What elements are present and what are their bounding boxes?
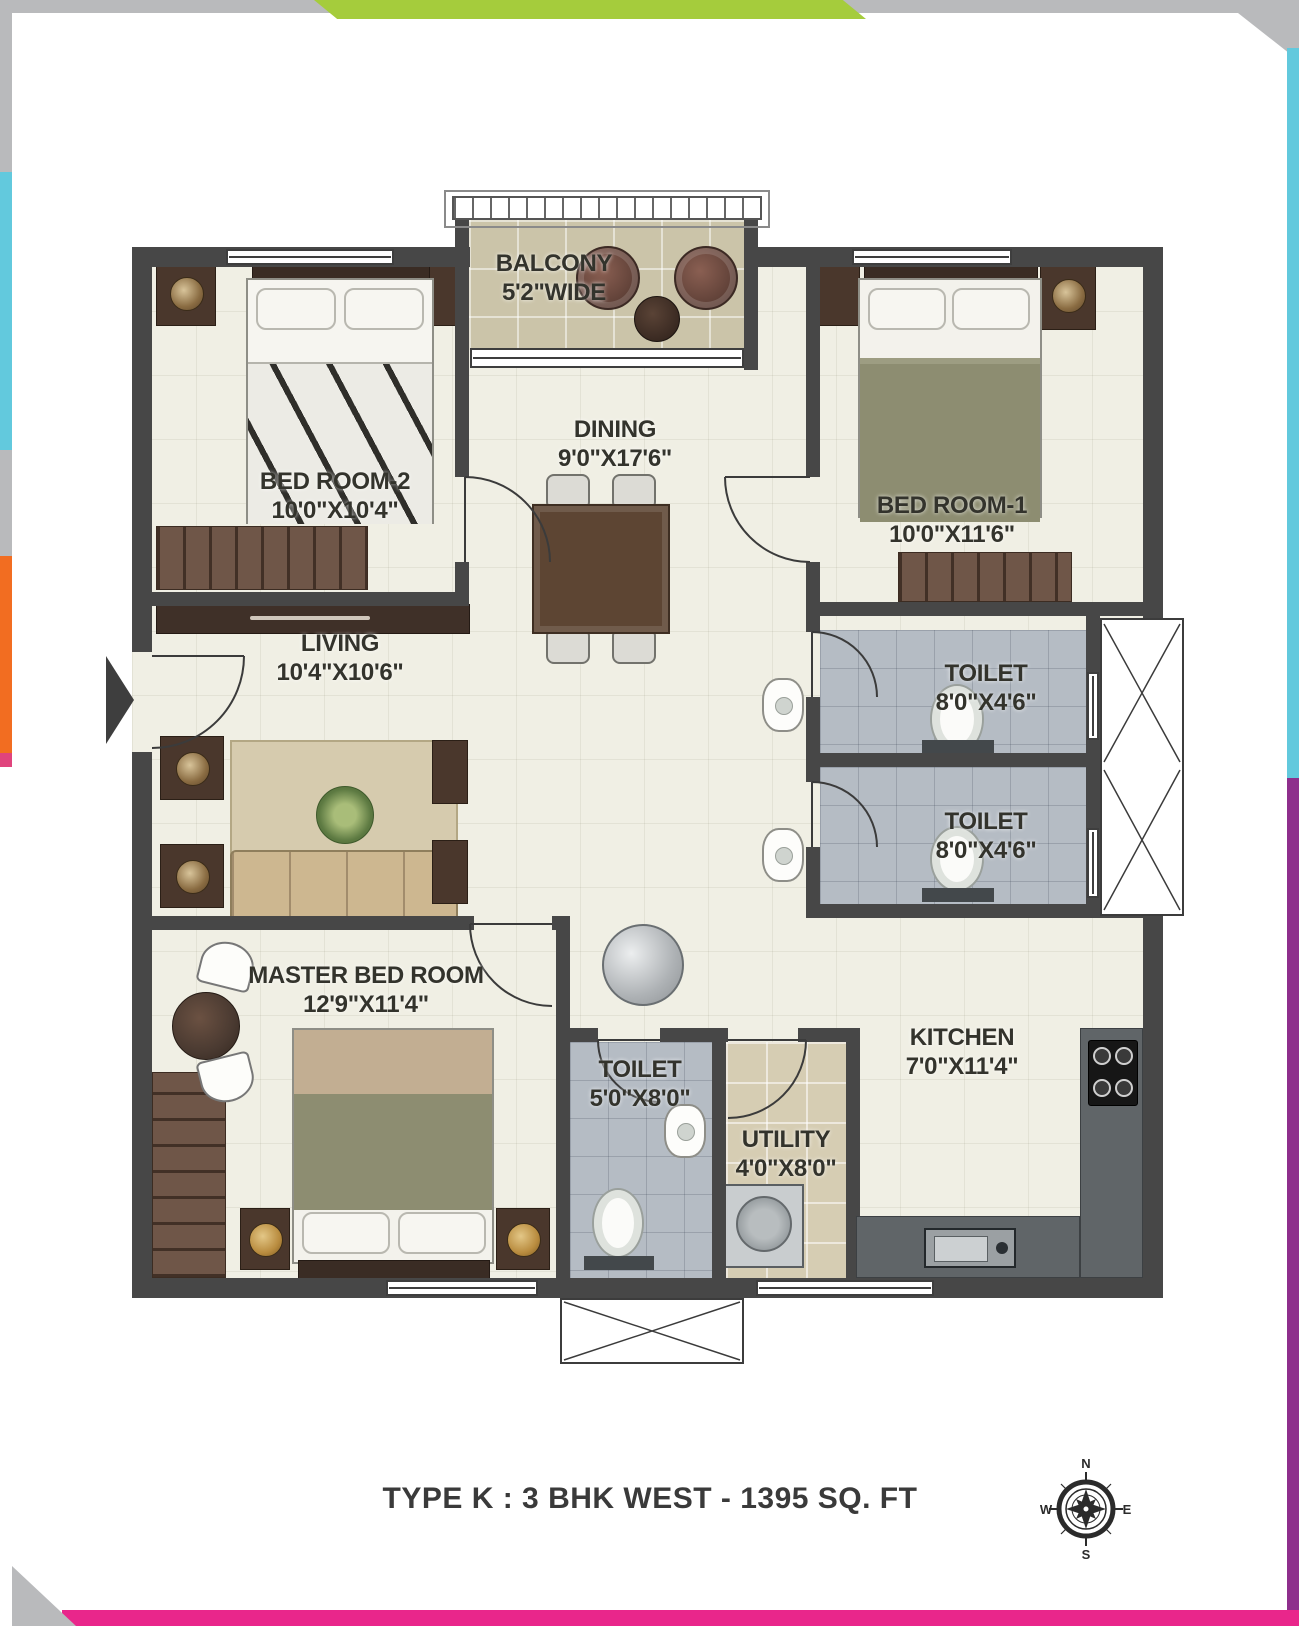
room-name: UTILITY xyxy=(714,1126,858,1155)
pillow xyxy=(256,288,336,330)
wall-bottomblock-top-a xyxy=(570,1028,598,1042)
room-size: 10'0"X10'4" xyxy=(200,497,470,526)
washing-machine-drum xyxy=(736,1196,792,1252)
frame-left-pink-tip xyxy=(0,753,12,767)
balcony-slider-window xyxy=(470,348,744,368)
nightstand xyxy=(240,1208,290,1270)
window-bedroom1 xyxy=(852,249,1012,265)
bed-headboard xyxy=(298,1260,490,1280)
room-name: KITCHEN xyxy=(854,1024,1070,1053)
duct-shaft-right xyxy=(1100,618,1184,916)
wash-basin xyxy=(762,678,804,732)
compass-east-label: E xyxy=(1123,1502,1132,1517)
room-label-living: LIVING 10'4"X10'6" xyxy=(235,630,445,688)
room-label-bedroom1: BED ROOM-1 10'0"X11'6" xyxy=(822,492,1082,550)
kitchen-sink xyxy=(924,1228,1016,1268)
toilet-fixture xyxy=(592,1188,644,1258)
pillow xyxy=(302,1212,390,1254)
balcony-wall-right xyxy=(744,213,758,370)
sink-basin xyxy=(934,1236,988,1262)
room-name: BALCONY xyxy=(470,250,638,279)
lamp-icon xyxy=(176,860,210,894)
room-name: TOILET xyxy=(566,1056,714,1085)
burner-icon xyxy=(1115,1047,1133,1065)
bed-blanket xyxy=(294,1094,492,1210)
wardrobe-bedroom2 xyxy=(156,526,368,590)
tv-console-line xyxy=(250,616,370,620)
frame-right-purple xyxy=(1287,778,1299,1612)
frame-bottom-pink xyxy=(62,1610,1299,1626)
room-size: 8'0"X4'6" xyxy=(893,837,1079,866)
room-label-bedroom2: BED ROOM-2 10'0"X10'4" xyxy=(200,468,470,526)
armchair xyxy=(432,740,468,804)
lamp-icon xyxy=(176,752,210,786)
burner-icon xyxy=(1115,1079,1133,1097)
armchair xyxy=(432,840,468,904)
frame-left-orange xyxy=(0,556,12,753)
window-bedroom2 xyxy=(226,249,394,265)
faucet-icon xyxy=(996,1242,1008,1254)
room-name: BED ROOM-2 xyxy=(200,468,470,497)
room-name: MASTER BED ROOM xyxy=(196,962,536,991)
window-toilet-mid xyxy=(1087,828,1099,898)
pillow xyxy=(868,288,946,330)
compass-west-label: W xyxy=(1040,1502,1053,1517)
side-table xyxy=(160,844,224,908)
nightstand xyxy=(814,260,860,326)
dining-table xyxy=(532,504,670,634)
room-name: LIVING xyxy=(235,630,445,659)
lamp-icon xyxy=(507,1223,541,1257)
compass-south-label: S xyxy=(1082,1547,1091,1560)
side-table xyxy=(160,736,224,800)
wall-left-lower xyxy=(132,752,152,1298)
nightstand xyxy=(496,1208,550,1270)
burner-icon xyxy=(1093,1079,1111,1097)
room-label-kitchen: KITCHEN 7'0"X11'4" xyxy=(854,1024,1070,1082)
pillow xyxy=(952,288,1030,330)
room-size: 9'0"X17'6" xyxy=(520,445,710,474)
wall-toilets-left-b xyxy=(806,697,820,782)
lamp-icon xyxy=(1052,279,1086,313)
frame-left-gray-top xyxy=(0,0,12,172)
floor-plan-page: BALCONY 5'2"WIDE BED ROOM-2 10'0"X10'4" … xyxy=(0,0,1299,1626)
nightstand xyxy=(156,260,216,326)
room-size: 4'0"X8'0" xyxy=(714,1155,858,1184)
wall-bedroom1-bottom xyxy=(806,602,1163,616)
room-size: 10'0"X11'6" xyxy=(822,521,1082,550)
room-name: DINING xyxy=(520,416,710,445)
room-size: 8'0"X4'6" xyxy=(893,689,1079,718)
lamp-icon xyxy=(170,277,204,311)
room-name: TOILET xyxy=(893,808,1079,837)
wall-master-top-a xyxy=(132,916,474,930)
frame-top-green xyxy=(314,0,866,19)
room-label-toilet-top: TOILET 8'0"X4'6" xyxy=(893,660,1079,718)
window-toilet-top xyxy=(1087,672,1099,740)
gas-hob xyxy=(1088,1040,1138,1106)
room-label-toilet-mid: TOILET 8'0"X4'6" xyxy=(893,808,1079,866)
wall-toilets-left-a xyxy=(806,616,820,632)
window-kitchen xyxy=(756,1280,934,1296)
balcony-railing xyxy=(452,196,762,220)
wash-basin xyxy=(762,828,804,882)
bed-blanket-top xyxy=(294,1030,492,1094)
pillow xyxy=(398,1212,486,1254)
frame-right-cyan xyxy=(1287,48,1299,778)
room-size: 5'0"X8'0" xyxy=(566,1085,714,1114)
room-size: 12'9"X11'4" xyxy=(196,991,536,1020)
room-size: 10'4"X10'6" xyxy=(235,659,445,688)
toilet-mat xyxy=(922,740,994,754)
plan-title: TYPE K : 3 BHK WEST - 1395 SQ. FT xyxy=(250,1482,1050,1516)
window-master xyxy=(386,1280,538,1296)
wall-bedroom2-right-a xyxy=(455,370,469,477)
room-label-balcony: BALCONY 5'2"WIDE xyxy=(470,250,638,308)
balcony-wall-left xyxy=(455,213,469,370)
wall-toilet-separator xyxy=(806,753,1100,767)
wall-bottom xyxy=(132,1278,1163,1298)
wall-bedroom1-left-a xyxy=(806,247,820,477)
toilet-mat xyxy=(922,888,994,902)
room-name: BED ROOM-1 xyxy=(822,492,1082,521)
room-size: 7'0"X11'4" xyxy=(854,1053,1070,1082)
compass-rose-icon: N S W E xyxy=(1040,1456,1132,1560)
duct-shaft-bottom xyxy=(560,1298,744,1364)
frame-left-gray-mid xyxy=(0,450,12,556)
entrance-arrow-icon xyxy=(106,656,134,744)
frame-left-cyan xyxy=(0,172,12,450)
pillow xyxy=(344,288,424,330)
lamp-icon xyxy=(249,1223,283,1257)
room-label-master: MASTER BED ROOM 12'9"X11'4" xyxy=(196,962,536,1020)
room-name: TOILET xyxy=(893,660,1079,689)
room-size: 5'2"WIDE xyxy=(470,279,638,308)
nightstand xyxy=(1040,260,1096,330)
wall-bedroom2-bottom xyxy=(132,592,469,606)
room-label-dining: DINING 9'0"X17'6" xyxy=(520,416,710,474)
compass-north-label: N xyxy=(1081,1456,1090,1471)
wardrobe-master xyxy=(152,1072,226,1278)
room-label-utility: UTILITY 4'0"X8'0" xyxy=(714,1126,858,1184)
toilet-mat xyxy=(584,1256,654,1270)
burner-icon xyxy=(1093,1047,1111,1065)
balcony-chair xyxy=(674,246,738,310)
balcony-table xyxy=(634,296,680,342)
water-heater xyxy=(602,924,684,1006)
wardrobe-bedroom1 xyxy=(898,552,1072,602)
room-label-toilet-bottom: TOILET 5'0"X8'0" xyxy=(566,1056,714,1114)
plant-icon xyxy=(316,786,374,844)
